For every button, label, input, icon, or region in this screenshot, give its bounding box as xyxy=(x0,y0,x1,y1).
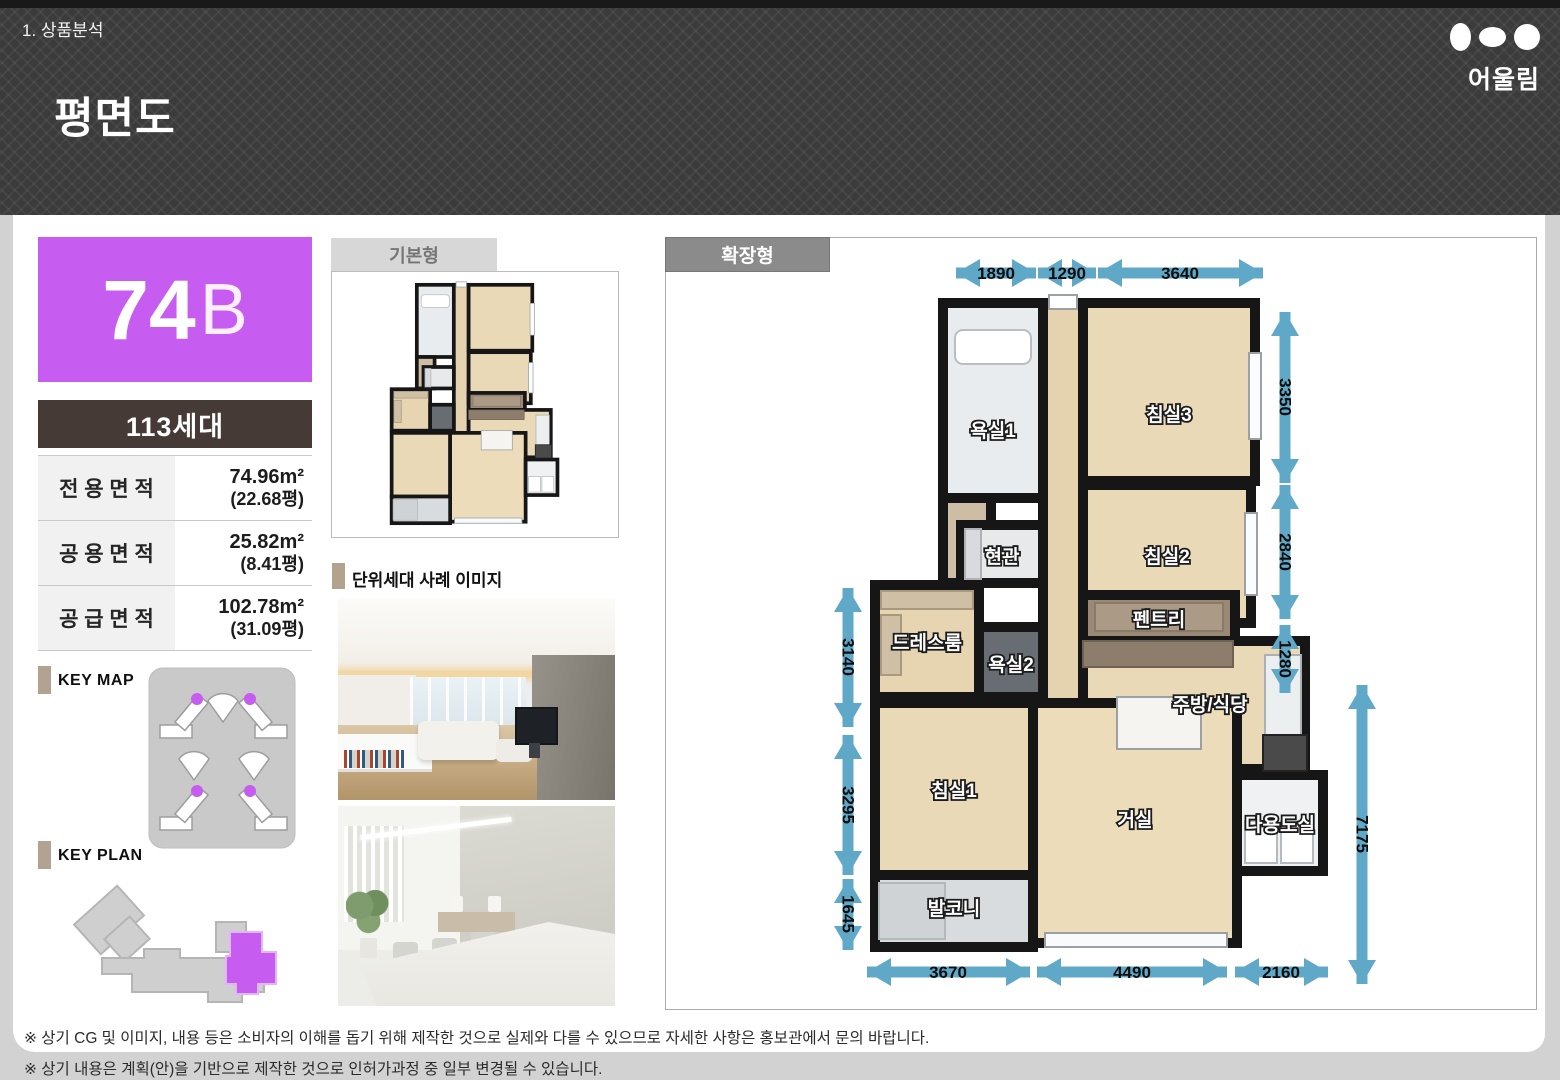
section-bullet-icon xyxy=(38,666,51,694)
room-label-dressroom: 드레스룸 xyxy=(892,632,962,654)
sample-photo-dining-room xyxy=(338,806,615,1006)
photo-tv xyxy=(515,707,558,745)
photo-plant xyxy=(346,890,390,942)
photo-plant-pot xyxy=(360,938,377,958)
breadcrumb: 1. 상품분석 xyxy=(22,16,103,41)
sample-photo-living-room xyxy=(338,598,615,800)
area-row-label: 공 급 면 적 xyxy=(38,586,175,650)
disclaimer-note-1: ※ 상기 CG 및 이미지, 내용 등은 소비자의 이해를 돕기 위해 제작한 … xyxy=(24,1026,929,1048)
dim-label: 1645 xyxy=(839,895,858,933)
extended-floorplan: 욕실1 침실3 침실2 현관 펜트리 드레스룸 욕실2 주방/식당 침실1 거실… xyxy=(665,235,1537,1010)
area-row-value: 74.96m² (22.68평) xyxy=(175,456,312,520)
photo-lamp xyxy=(488,896,502,912)
area-sqm: 74.96m² xyxy=(230,465,305,489)
room-label-balcony: 발코니 xyxy=(928,898,980,920)
logo-dot-icon xyxy=(1514,24,1540,50)
photo-sideboard xyxy=(438,912,516,932)
room-label-bedroom1: 침실1 xyxy=(931,780,977,802)
room-label-bath2: 욕실2 xyxy=(988,654,1034,676)
area-row-label: 전 용 면 적 xyxy=(38,456,175,520)
key-plan-graphic xyxy=(72,862,307,1020)
unit-number: 74 xyxy=(102,268,195,352)
logo-dot-icon xyxy=(1479,27,1506,47)
area-row-value: 102.78m² (31.09평) xyxy=(175,586,312,650)
key-plan-highlight-unit xyxy=(226,932,276,994)
photo-window xyxy=(410,677,526,728)
area-table: 전 용 면 적 74.96m² (22.68평) 공 용 면 적 25.82m²… xyxy=(38,455,312,651)
area-sqm: 25.82m² xyxy=(230,530,305,554)
dim-label: 3670 xyxy=(929,963,967,982)
brand-logo-icon xyxy=(1410,18,1540,56)
room-label-pantry: 펜트리 xyxy=(1133,609,1185,631)
table-row: 공 급 면 적 102.78m² (31.09평) xyxy=(38,586,312,651)
table-row: 전 용 면 적 74.96m² (22.68평) xyxy=(38,455,312,521)
area-row-value: 25.82m² (8.41평) xyxy=(175,521,312,585)
photo-tv-stand xyxy=(529,743,540,757)
key-map-graphic xyxy=(147,664,297,856)
area-sqm: 102.78m² xyxy=(218,595,304,619)
room-label-kitchen: 주방/식당 xyxy=(1172,694,1248,716)
slide-page: 1. 상품분석 평면도 어울림 74 B 113세대 전 용 면 적 74.96… xyxy=(0,0,1560,1080)
dim-label: 3140 xyxy=(839,638,858,676)
key-map-label: KEY MAP xyxy=(58,672,134,690)
photo-sofa xyxy=(418,721,498,759)
area-row-label: 공 용 면 적 xyxy=(38,521,175,585)
unit-letter: B xyxy=(200,274,248,346)
brand-logo: 어울림 xyxy=(1410,18,1540,96)
dim-label: 2160 xyxy=(1262,963,1300,982)
room-label-bedroom2: 침실2 xyxy=(1144,546,1190,568)
dim-label: 1890 xyxy=(977,264,1015,283)
room-label-bedroom3: 침실3 xyxy=(1146,404,1192,426)
basic-floorplan xyxy=(379,280,569,528)
dim-label: 2840 xyxy=(1276,533,1295,571)
photo-lamp xyxy=(449,896,463,912)
room-label-entrance: 현관 xyxy=(985,546,1020,568)
area-pyeong: (31.09평) xyxy=(230,619,304,641)
photo-books xyxy=(344,750,405,768)
sample-images-label: 단위세대 사례 이미지 xyxy=(352,566,502,591)
room-label-utility: 다용도실 xyxy=(1245,814,1315,836)
dim-label: 3640 xyxy=(1161,264,1199,283)
section-bullet-icon xyxy=(332,563,345,589)
household-count-box: 113세대 xyxy=(38,400,312,448)
extended-type-label: 확장형 xyxy=(665,237,830,272)
area-pyeong: (8.41평) xyxy=(240,554,304,576)
disclaimer-note-2: ※ 상기 내용은 계획(안)을 기반으로 제작한 것으로 인허가과정 중 일부 … xyxy=(24,1057,602,1079)
dim-label: 3350 xyxy=(1276,378,1295,416)
page-title: 평면도 xyxy=(54,84,176,146)
dim-label: 4490 xyxy=(1113,963,1151,982)
header: 1. 상품분석 평면도 어울림 xyxy=(0,0,1560,215)
brand-name: 어울림 xyxy=(1410,60,1540,96)
unit-type-badge: 74 B xyxy=(38,237,312,382)
dim-label: 3295 xyxy=(839,786,858,824)
room-label-bath1: 욕실1 xyxy=(970,420,1016,442)
table-row: 공 용 면 적 25.82m² (8.41평) xyxy=(38,521,312,586)
room-label-living: 거실 xyxy=(1118,809,1153,831)
section-bullet-icon xyxy=(38,841,51,869)
basic-type-label: 기본형 xyxy=(331,238,497,271)
dim-label: 1290 xyxy=(1048,264,1086,283)
logo-dot-icon xyxy=(1450,23,1471,51)
dim-label: 1280 xyxy=(1276,640,1295,678)
area-pyeong: (22.68평) xyxy=(230,489,304,511)
dim-label: 7175 xyxy=(1353,815,1372,853)
